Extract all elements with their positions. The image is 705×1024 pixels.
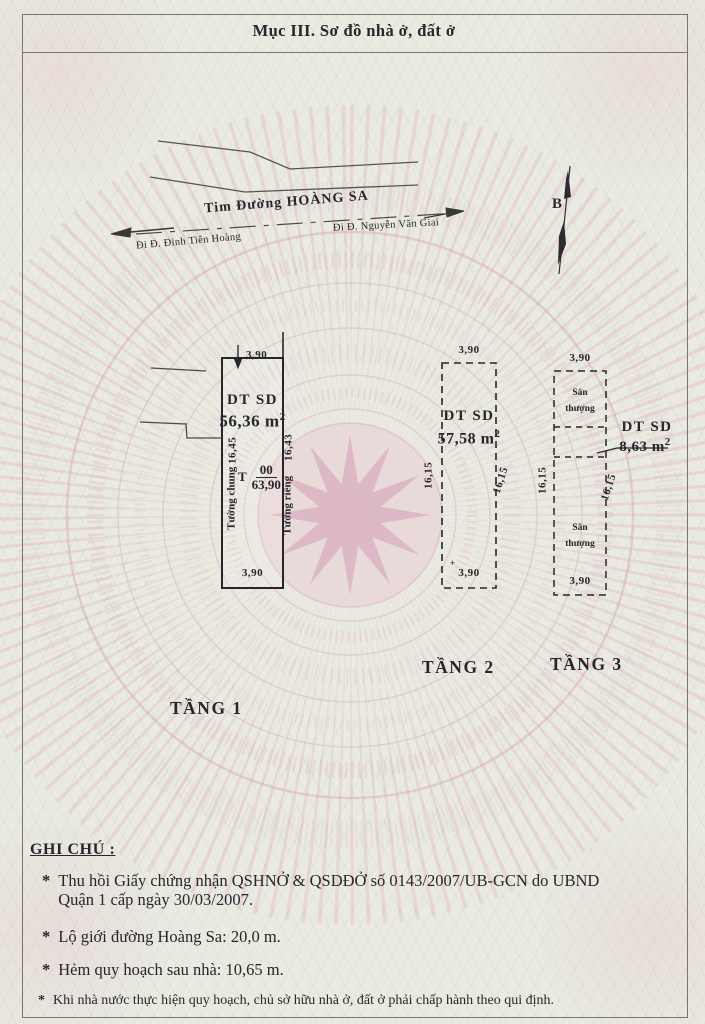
floor1-left-wall-label: Tường chung (226, 458, 239, 538)
floor3-terrace-top-label: Sân thượng (557, 385, 603, 417)
floor1-right-wall-label: Tường riêng (282, 465, 295, 545)
floor3-top-dim: 3,90 (554, 352, 606, 365)
note-text: Thu hồi Giấy chứng nhận QSHNỞ & QSDĐỞ số… (58, 872, 599, 891)
notes-heading: GHI CHÚ : (30, 841, 115, 859)
floor3-terrace-bottom-label: Sân thượng (557, 520, 603, 552)
note-text: Quận 1 cấp ngày 30/03/2007. (58, 891, 599, 910)
floor2-bottom-dim: 3,90 (442, 567, 496, 580)
note-bullet: * (42, 961, 50, 980)
floor2-name: TẦNG 2 (422, 657, 495, 677)
note-item: * Khi nhà nước thực hiện quy hoạch, chủ … (38, 993, 693, 1009)
floor3-area-value: 8,63 m2 (610, 436, 680, 456)
floor1-area-label: DT SD (222, 392, 283, 409)
floor1-right-dim: 16,43 (283, 427, 296, 467)
floor3-bottom-dim: 3,90 (554, 575, 606, 588)
floor1-top-dim: 3,90 (246, 349, 267, 362)
note-text: Hẻm quy hoạch sau nhà: 10,65 m. (58, 961, 283, 980)
certificate-page: Mục III. Sơ đồ nhà ở, đất ở Tim Đường HO… (0, 0, 705, 1024)
note-text: Khi nhà nước thực hiện quy hoạch, chủ sở… (53, 993, 554, 1009)
note-item: * Lộ giới đường Hoàng Sa: 20,0 m. (42, 928, 682, 947)
floor2-area-label: DT SD (442, 408, 496, 425)
note-item: * Thu hồi Giấy chứng nhận QSHNỞ & QSDĐỞ … (42, 872, 682, 910)
floor1-bottom-dim: 3,90 (222, 567, 283, 580)
floor3-left-dim: 16,15 (537, 460, 550, 500)
floor2-top-dim: 3,90 (442, 344, 496, 357)
note-item: * Hẻm quy hoạch sau nhà: 10,65 m. (42, 961, 682, 980)
header-divider (22, 52, 687, 53)
page-title: Mục III. Sơ đồ nhà ở, đất ở (22, 22, 686, 41)
floor2-area-value: 57,58 m2 (430, 428, 508, 449)
floor3-area-label: DT SD (616, 419, 678, 436)
floor1-survey-marker: T 00 63,90 (238, 463, 281, 493)
floor3-name: TẦNG 3 (550, 654, 623, 674)
north-label: B (552, 196, 562, 213)
floor1-name: TẦNG 1 (170, 698, 243, 718)
page-border-frame (22, 14, 688, 1018)
note-bullet: * (38, 993, 45, 1009)
note-bullet: * (42, 872, 50, 910)
floor2-left-dim: 16,15 (423, 455, 436, 495)
note-bullet: * (42, 928, 50, 947)
note-text: Lộ giới đường Hoàng Sa: 20,0 m. (58, 928, 281, 947)
